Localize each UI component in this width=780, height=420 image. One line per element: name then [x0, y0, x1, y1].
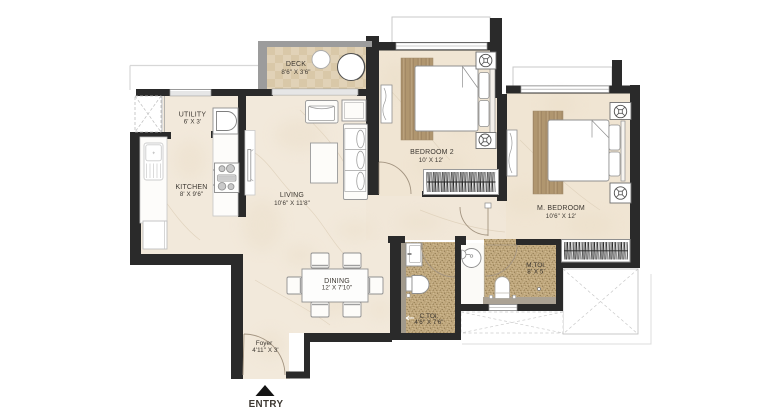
svg-text:10' X 12': 10' X 12' — [419, 157, 444, 164]
svg-text:10'6" X 11'8": 10'6" X 11'8" — [274, 200, 310, 207]
svg-text:ENTRY: ENTRY — [249, 399, 284, 410]
svg-text:BEDROOM 2: BEDROOM 2 — [410, 149, 454, 156]
svg-text:UTILITY: UTILITY — [179, 112, 207, 119]
svg-text:KITCHEN: KITCHEN — [175, 184, 207, 191]
svg-text:4'6" X 7'6": 4'6" X 7'6" — [414, 319, 443, 326]
svg-text:DECK: DECK — [286, 61, 306, 68]
svg-text:12' X 7'10": 12' X 7'10" — [322, 285, 352, 292]
svg-text:4'11" X 3': 4'11" X 3' — [252, 347, 278, 354]
svg-text:8'6" X 3'6": 8'6" X 3'6" — [281, 69, 310, 76]
svg-text:Foyer: Foyer — [256, 340, 273, 347]
svg-text:M. BEDROOM: M. BEDROOM — [537, 205, 585, 212]
svg-text:10'6" X 12': 10'6" X 12' — [546, 213, 576, 220]
svg-text:LIVING: LIVING — [280, 192, 304, 199]
svg-text:8' X 5': 8' X 5' — [527, 269, 545, 276]
svg-text:8' X 9'6": 8' X 9'6" — [180, 191, 203, 198]
svg-text:6' X 3': 6' X 3' — [184, 119, 202, 126]
